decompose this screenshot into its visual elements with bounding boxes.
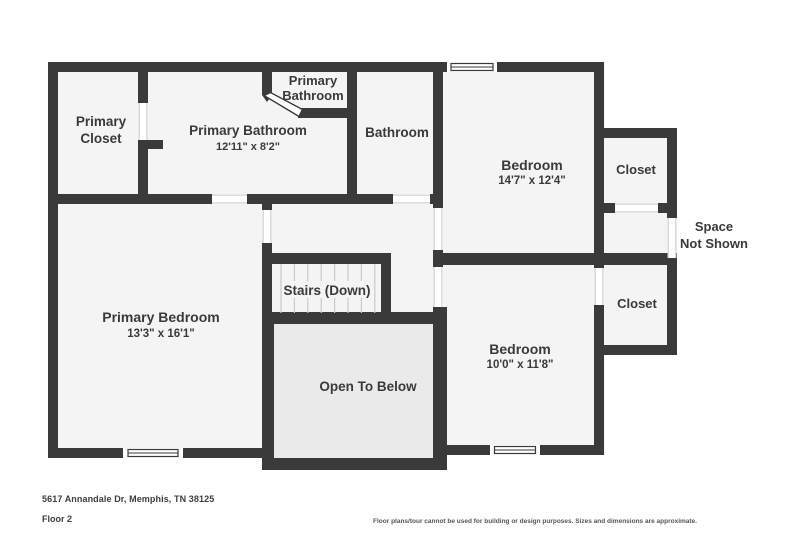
room-dims-bedroom1: 14'7" x 12'4" (498, 175, 566, 187)
primary-bedroom-door (263, 210, 272, 243)
label-space-not-shown-line1: Space (695, 219, 733, 234)
bedroom1-window (447, 62, 497, 72)
bedroom1-door (434, 208, 443, 250)
room-dims-primary-bathroom: 12'11" x 8'2" (216, 141, 280, 153)
room-label-primary-bathroom: Primary Bathroom (189, 123, 307, 138)
room-label-wc-line2: Bathroom (282, 88, 343, 103)
room-dims-bedroom2: 10'0" x 11'8" (487, 359, 554, 371)
floor-plan-canvas: Primary Closet Primary Bathroom 12'11" x… (0, 0, 800, 533)
room-label-bathroom: Bathroom (365, 125, 429, 140)
bedroom2-window (490, 445, 540, 455)
closet-lower-door (595, 268, 604, 305)
room-label-wc-line1: Primary (289, 73, 338, 88)
primary-bathroom-door (212, 195, 247, 204)
primary-closet-door (139, 103, 148, 140)
room-label-closet-upper: Closet (616, 162, 656, 177)
room-label-closet-lower: Closet (617, 296, 657, 311)
room-label-primary-closet-line2: Closet (80, 131, 122, 146)
footer-disclaimer: Floor plans/tour cannot be used for buil… (270, 518, 800, 525)
closet-upper-door (615, 204, 658, 213)
room-label-bedroom1: Bedroom (501, 157, 562, 173)
footer-floor-label: Floor 2 (42, 514, 72, 524)
bedroom2-door (434, 267, 443, 307)
bathroom-door (393, 195, 430, 204)
room-dims-primary-bedroom: 13'3" x 16'1" (127, 328, 195, 340)
space-not-shown-opening (668, 218, 677, 258)
room-label-bedroom2: Bedroom (489, 341, 550, 357)
room-label-stairs: Stairs (Down) (283, 283, 370, 298)
room-label-open-to-below: Open To Below (319, 379, 417, 394)
floor-plan-page: Primary Closet Primary Bathroom 12'11" x… (0, 0, 800, 533)
primary-bedroom-window (123, 448, 183, 458)
footer-address: 5617 Annandale Dr, Memphis, TN 38125 (42, 494, 214, 504)
room-label-primary-bedroom: Primary Bedroom (102, 309, 219, 325)
label-space-not-shown-line2: Not Shown (680, 236, 748, 251)
room-label-primary-closet-line1: Primary (76, 114, 127, 129)
